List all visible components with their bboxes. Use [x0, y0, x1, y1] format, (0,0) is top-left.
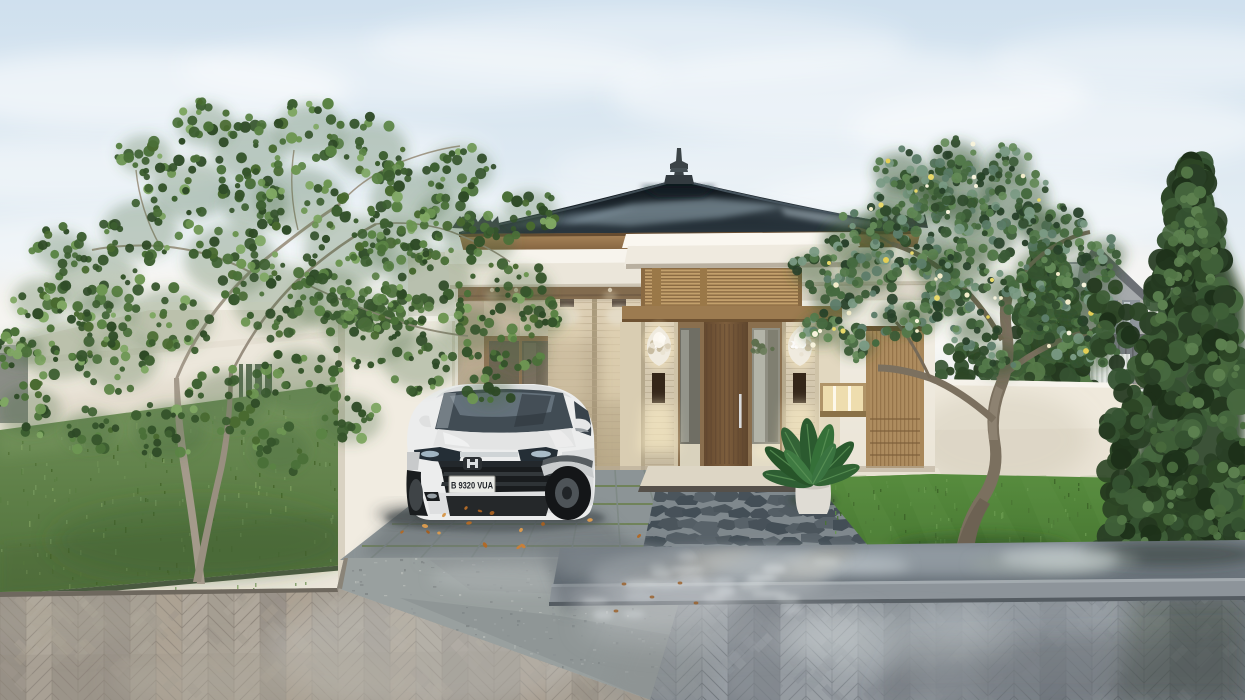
svg-text:B 9320 VUA: B 9320 VUA	[451, 481, 493, 492]
